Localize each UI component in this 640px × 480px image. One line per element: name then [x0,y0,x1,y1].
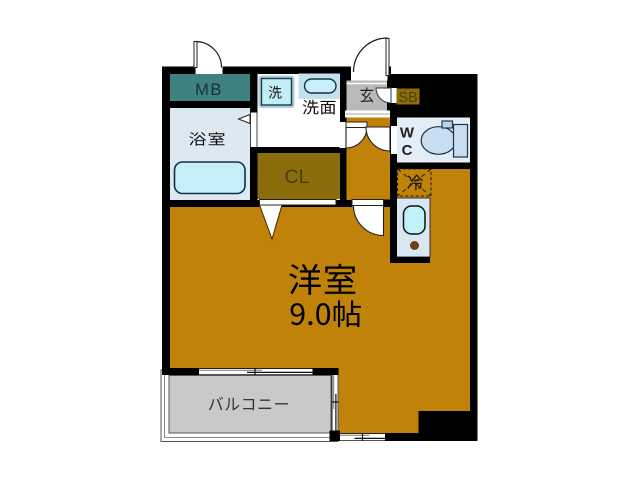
svg-text:W: W [400,125,415,142]
svg-text:SB: SB [398,90,417,106]
svg-text:MB: MB [195,81,223,99]
svg-text:C: C [402,142,413,159]
svg-text:CL: CL [285,166,310,188]
